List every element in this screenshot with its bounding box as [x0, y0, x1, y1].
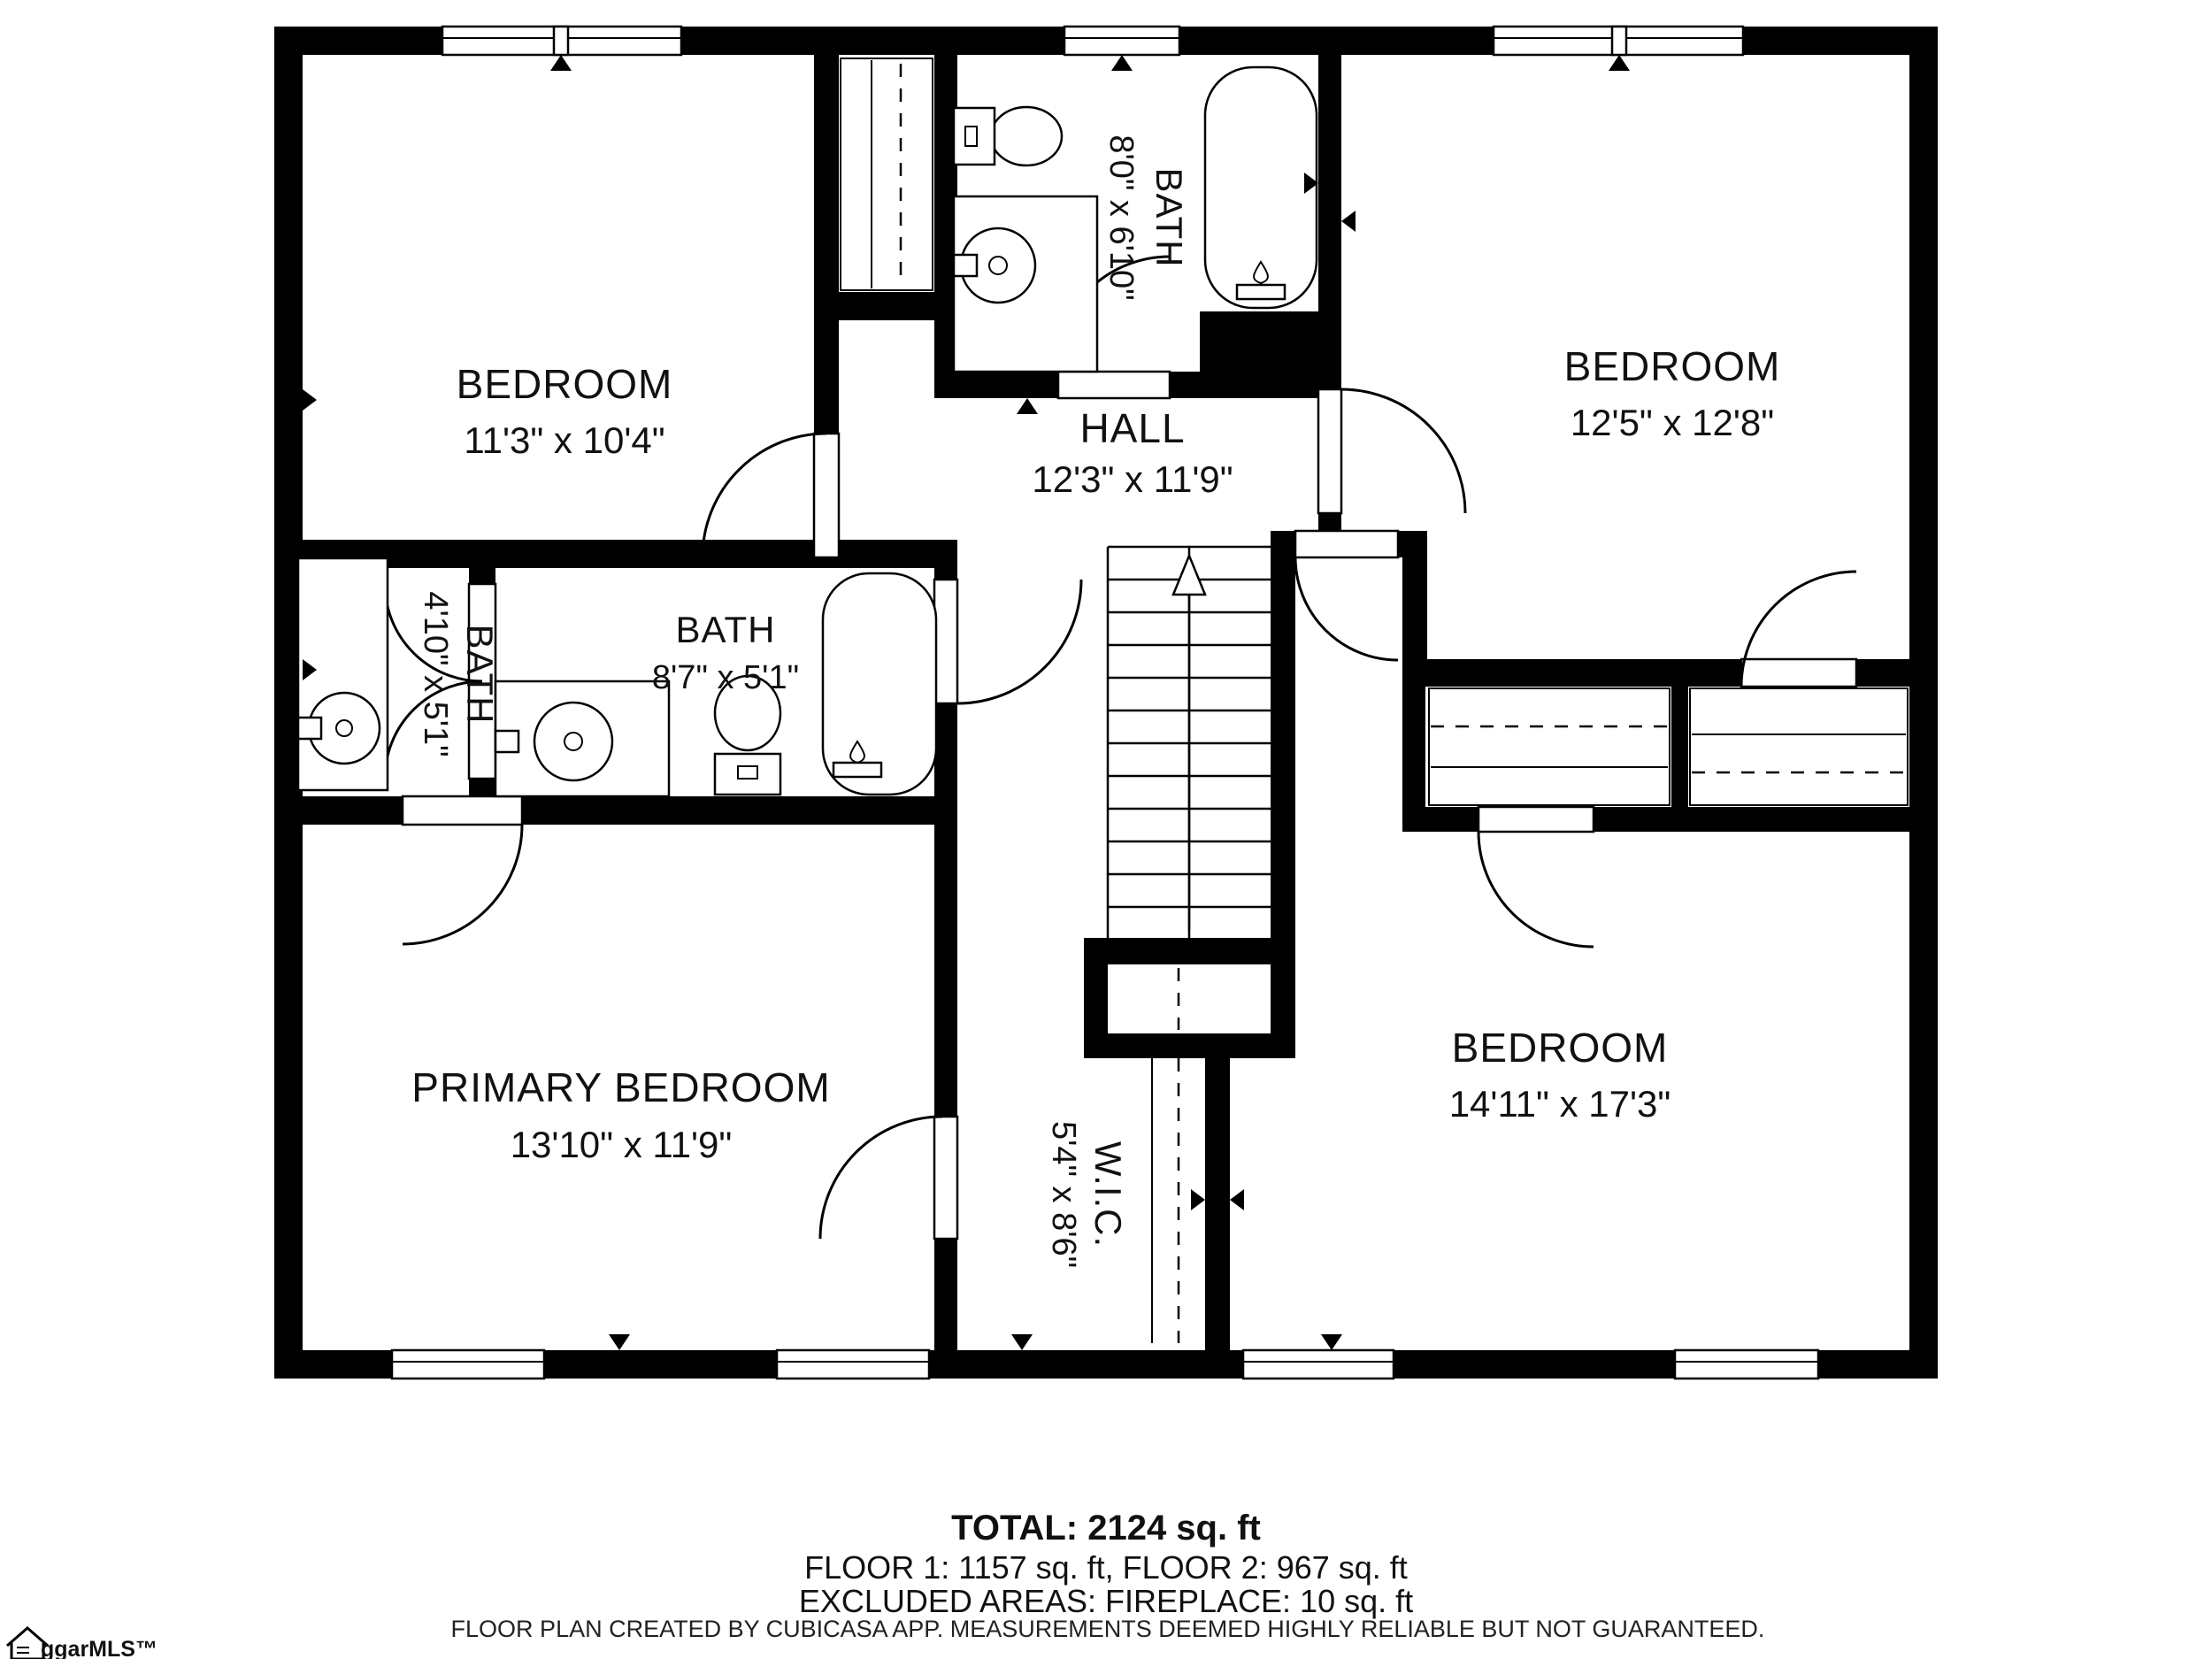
room-name: BEDROOM [457, 361, 673, 407]
room-name: BATH [676, 609, 776, 650]
label-wic: W.I.C. 5'4" x 8'6" [1045, 1121, 1129, 1268]
stairs-up-arrow-icon [1173, 556, 1205, 595]
floor-plan-page: BEDROOM 11'3" x 10'4" BATH 8'0" x 6'10" … [0, 0, 2212, 1659]
mls-logo: ggarMLS™ [7, 1628, 157, 1659]
total-area-text: TOTAL: 2124 sq. ft [951, 1509, 1261, 1548]
door-arc-primary-bath [403, 825, 522, 944]
door-frame-closet-b [1741, 659, 1856, 687]
label-bath-middle: BATH 8'7" x 5'1" [652, 609, 799, 696]
label-bath-top: BATH 8'0" x 6'10" [1102, 134, 1190, 300]
label-bedroom-bottom-right: BEDROOM 14'11" x 17'3" [1449, 1025, 1671, 1125]
window-bath-top [1064, 27, 1179, 55]
disclaimer-text: FLOOR PLAN CREATED BY CUBICASA APP. MEAS… [451, 1616, 1765, 1642]
room-name: BATH [1148, 168, 1190, 268]
logo-text: ggarMLS™ [41, 1637, 157, 1659]
closet-top-middle [841, 58, 933, 290]
label-hall: HALL 12'3" x 11'9" [1032, 405, 1233, 500]
room-dims: 14'11" x 17'3" [1449, 1083, 1671, 1125]
closet-b-bedroom2 [1690, 688, 1908, 805]
room-name: W.I.C. [1087, 1141, 1129, 1248]
label-bedroom-top-left: BEDROOM 11'3" x 10'4" [457, 361, 673, 461]
room-dims: 5'4" x 8'6" [1045, 1121, 1082, 1268]
room-dims: 13'10" x 11'9" [511, 1124, 733, 1165]
door-frame-bedroom2 [1318, 389, 1341, 513]
room-name: BEDROOM [1564, 343, 1781, 389]
window-primary-left [392, 1350, 544, 1379]
staircase [1108, 547, 1271, 938]
door-arc-bedroom2 [1341, 389, 1465, 513]
room-name: BEDROOM [1452, 1025, 1669, 1071]
floor-plan-canvas: BEDROOM 11'3" x 10'4" BATH 8'0" x 6'10" … [0, 0, 2212, 1659]
door-arc-bedroom1 [703, 434, 826, 557]
sink-icon-bath-middle [495, 681, 669, 796]
label-bedroom-top-right: BEDROOM 12'5" x 12'8" [1564, 343, 1781, 443]
door-frame-primary-bedroom [934, 1117, 957, 1239]
door-arc-bath-middle [957, 580, 1081, 703]
sink-icon-bath-left [298, 558, 388, 790]
wic-rails [1152, 968, 1179, 1343]
room-name: BATH [459, 625, 501, 725]
window-bedroom3-right [1675, 1350, 1818, 1379]
door-arc-primary-bedroom [820, 1117, 942, 1239]
room-dims: 8'0" x 6'10" [1102, 134, 1140, 300]
closet-a-bedroom3 [1429, 688, 1670, 805]
toilet-icon-bath-top [954, 107, 1062, 165]
room-dims: 12'3" x 11'9" [1032, 458, 1233, 500]
door-frame-bath-top [1058, 372, 1170, 398]
door-frame-stair-top [1295, 531, 1398, 557]
door-frame-bedroom1 [814, 434, 839, 557]
bathtub-icon-bath-top [1205, 67, 1317, 308]
door-arc-stair-top [1295, 557, 1398, 660]
window-top-right-double [1494, 27, 1743, 55]
room-dims: 8'7" x 5'1" [652, 659, 799, 696]
room-name: HALL [1079, 405, 1185, 451]
floor-areas-text: FLOOR 1: 1157 sq. ft, FLOOR 2: 967 sq. f… [804, 1549, 1408, 1586]
excluded-areas-text: EXCLUDED AREAS: FIREPLACE: 10 sq. ft [799, 1583, 1413, 1619]
footer: TOTAL: 2124 sq. ft FLOOR 1: 1157 sq. ft,… [451, 1509, 1765, 1642]
window-top-left-double [442, 27, 681, 55]
window-primary-right [777, 1350, 929, 1379]
door-frame-bath-middle [934, 580, 957, 703]
door-frame-closet-a [1479, 807, 1594, 832]
sink-icon-bath-top [954, 196, 1097, 372]
bathtub-icon-bath-middle [823, 573, 936, 795]
room-dims: 12'5" x 12'8" [1571, 402, 1774, 443]
room-dims: 4'10" x 5'1" [417, 591, 454, 757]
room-dims: 11'3" x 10'4" [464, 419, 664, 461]
room-name: PRIMARY BEDROOM [411, 1064, 830, 1110]
door-arc-closet-a [1479, 832, 1594, 947]
label-primary-bedroom: PRIMARY BEDROOM 13'10" x 11'9" [411, 1064, 830, 1165]
window-bedroom3-left [1243, 1350, 1394, 1379]
door-frame-primary-bath [403, 796, 522, 825]
